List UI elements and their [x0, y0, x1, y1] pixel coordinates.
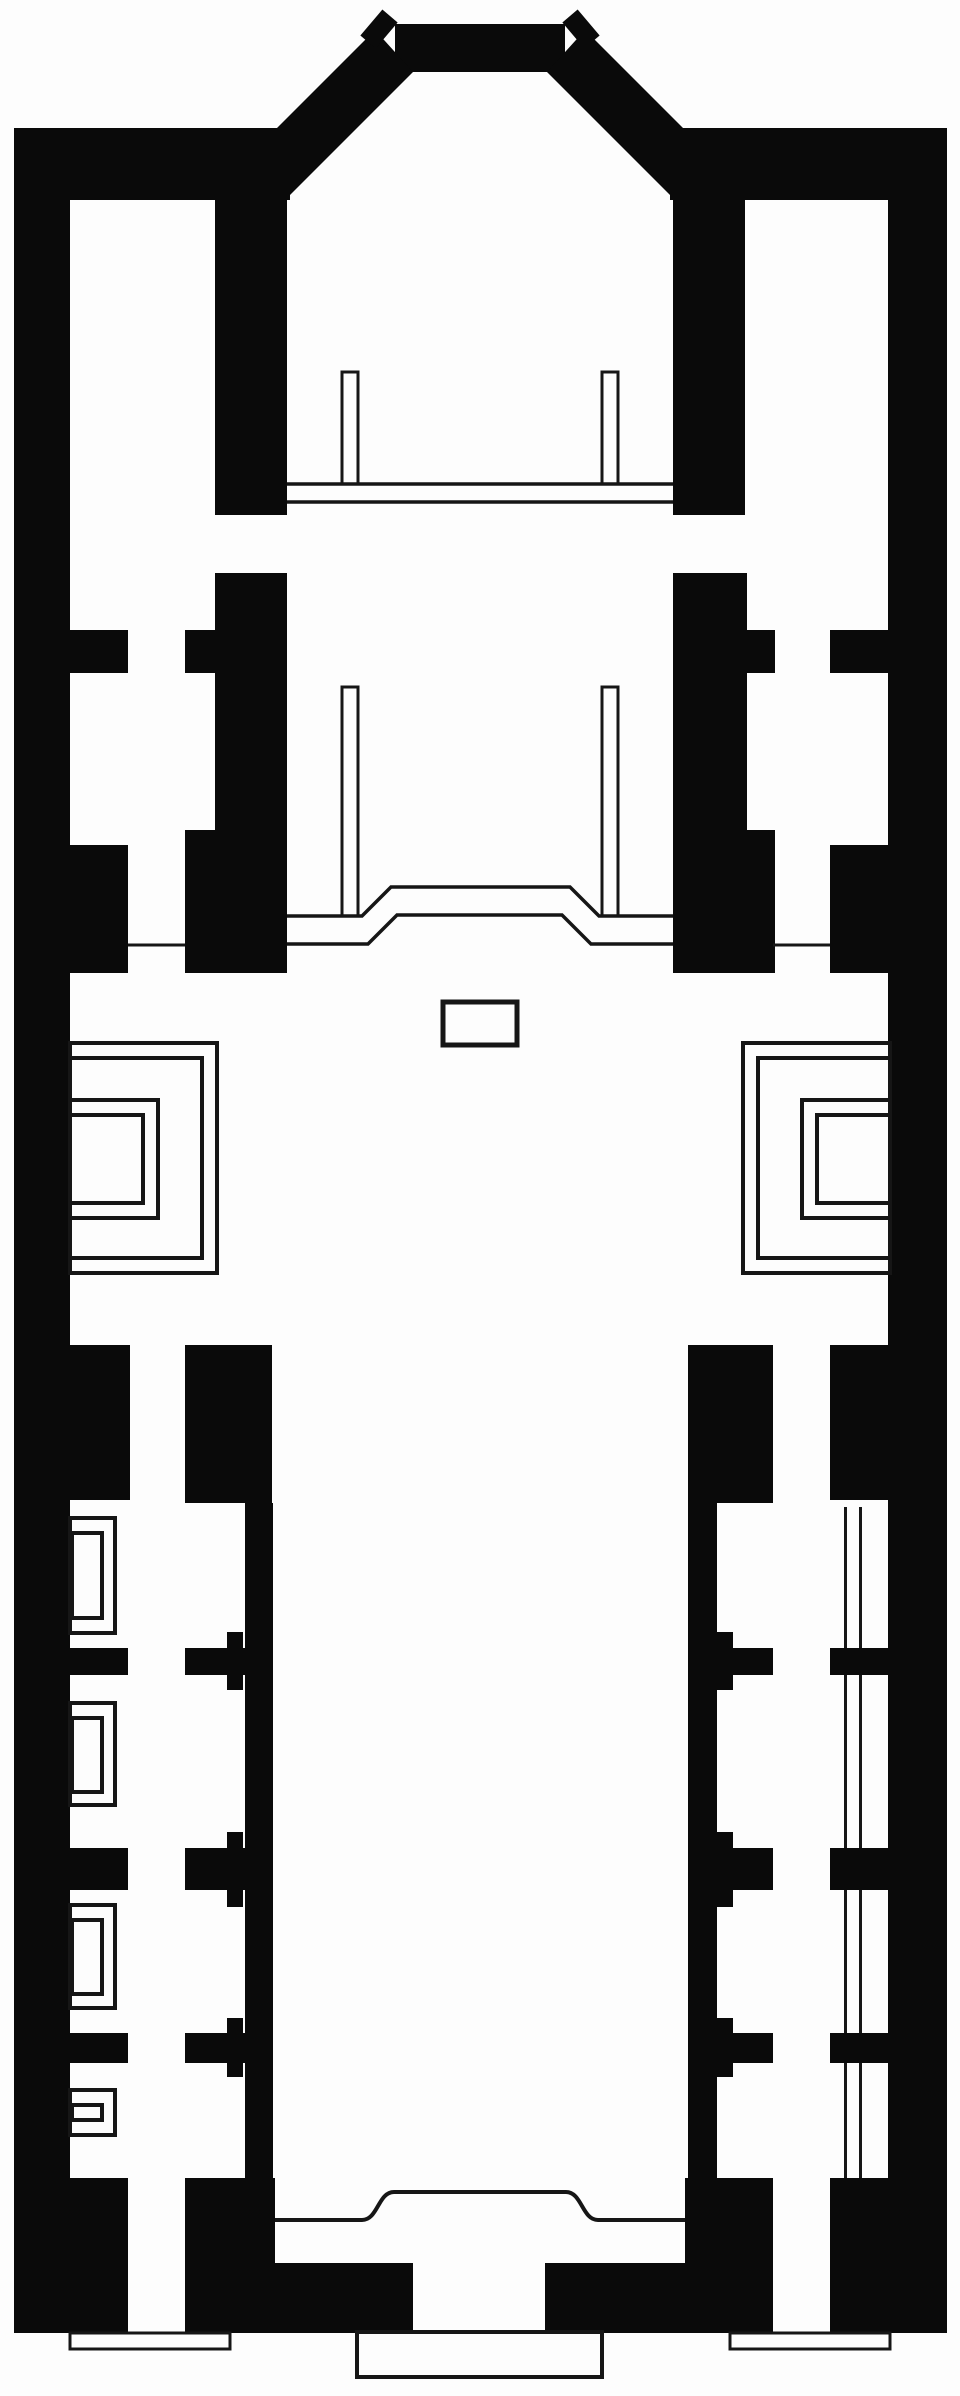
nave-notch-left-3b: [227, 2063, 243, 2077]
nave-notch-right-2a: [717, 1832, 733, 1848]
entrance-pier-left: [185, 2178, 275, 2333]
facade-wall-right: [545, 2263, 685, 2333]
nave-notch-left-1a: [227, 1632, 243, 1648]
side-niche-1-outer: [70, 1518, 115, 1633]
nave-notch-left-1b: [227, 1675, 243, 1690]
nave-stub-left-1: [185, 1648, 273, 1675]
apse-top-bar: [395, 24, 565, 72]
aisle-stub-right-1: [830, 1648, 888, 1675]
aisle-stub-left-2: [70, 1848, 128, 1890]
side-niche-4-outer: [70, 2090, 115, 2135]
nave-stub-left-3: [185, 2033, 273, 2063]
chancel-wall-right: [673, 200, 745, 515]
apse-diagonal-left: [205, 30, 413, 200]
nave-stub-right-2: [688, 1848, 773, 1890]
nave-notch-left-3a: [227, 2018, 243, 2033]
crossing-niche-right-rect-4: [817, 1115, 890, 1203]
aisle-stub-right-2: [830, 1848, 888, 1890]
aisle-block-left: [70, 845, 128, 973]
church-floor-plan-drawing: [0, 0, 960, 2396]
nave-notch-right-2b: [717, 1890, 733, 1907]
front-step-platform: [357, 2332, 602, 2377]
choir-column-right: [602, 687, 618, 916]
aisle-block-right: [830, 845, 888, 973]
nave-notch-right-3b: [717, 2063, 733, 2077]
side-niche-2-inner: [72, 1718, 102, 1792]
crossing-pier-right-inner: [688, 1345, 773, 1503]
nave-wall-left: [245, 1503, 273, 2178]
nave-notch-right-1b: [717, 1675, 733, 1690]
aisle-stub-right-3: [830, 2033, 888, 2063]
nave-wall-right: [688, 1503, 717, 2178]
aisle-stub-left-upper: [70, 630, 128, 673]
apse-diagonal-right: [547, 30, 755, 200]
crossing-niche-right-rect-2: [758, 1058, 890, 1258]
aisle-stub-right-upper: [830, 630, 888, 673]
choir-column-left: [342, 687, 358, 916]
side-niche-1-inner: [72, 1533, 102, 1618]
nave-stub-right-3: [688, 2033, 773, 2063]
crossing-pier-left-outer: [70, 1345, 130, 1500]
entrance-block-left: [70, 2178, 128, 2333]
apse-corner-tick-right: [570, 16, 592, 42]
narthex-inner-line: [275, 2192, 685, 2220]
facade-wall-left: [275, 2263, 413, 2333]
altar-box: [443, 1002, 517, 1045]
choir-wall-right: [673, 573, 747, 973]
choir-spur-left-upper: [185, 630, 215, 673]
side-niche-3-inner: [72, 1920, 102, 1994]
apse-corner-tick-left: [368, 16, 390, 42]
aisle-stub-left-1: [70, 1648, 128, 1675]
nave-stub-right-1: [688, 1648, 773, 1675]
outer-wall-right: [888, 128, 947, 2178]
choir-spur-right-upper: [747, 630, 775, 673]
side-step-right: [730, 2333, 890, 2349]
crossing-niche-left-rect-4: [70, 1115, 143, 1203]
choir-step-lower: [287, 915, 673, 944]
apse-column-left: [342, 372, 358, 484]
crossing-pier-right-outer: [830, 1345, 888, 1500]
nave-notch-left-2b: [227, 1890, 243, 1907]
aisle-stub-left-3: [70, 2033, 128, 2063]
choir-spur-right-lower: [747, 830, 775, 973]
entrance-block-right: [830, 2178, 947, 2333]
side-niche-4-inner: [72, 2105, 102, 2120]
nave-stub-left-2: [185, 1848, 273, 1890]
choir-spur-left-lower: [185, 830, 215, 973]
nave-notch-left-2a: [227, 1832, 243, 1848]
nave-notch-right-3a: [717, 2018, 733, 2033]
choir-step-upper: [287, 887, 673, 916]
crossing-niche-left-rect-2: [70, 1058, 202, 1258]
apse-column-right: [602, 372, 618, 484]
floor-plan-page: [0, 0, 960, 2396]
chancel-wall-left: [215, 200, 287, 515]
side-step-left: [70, 2333, 230, 2349]
crossing-pier-left-inner: [185, 1345, 272, 1503]
choir-wall-left: [215, 573, 287, 973]
nave-notch-right-1a: [717, 1632, 733, 1648]
outer-wall-left: [14, 128, 70, 2333]
entrance-pier-right: [685, 2178, 773, 2333]
